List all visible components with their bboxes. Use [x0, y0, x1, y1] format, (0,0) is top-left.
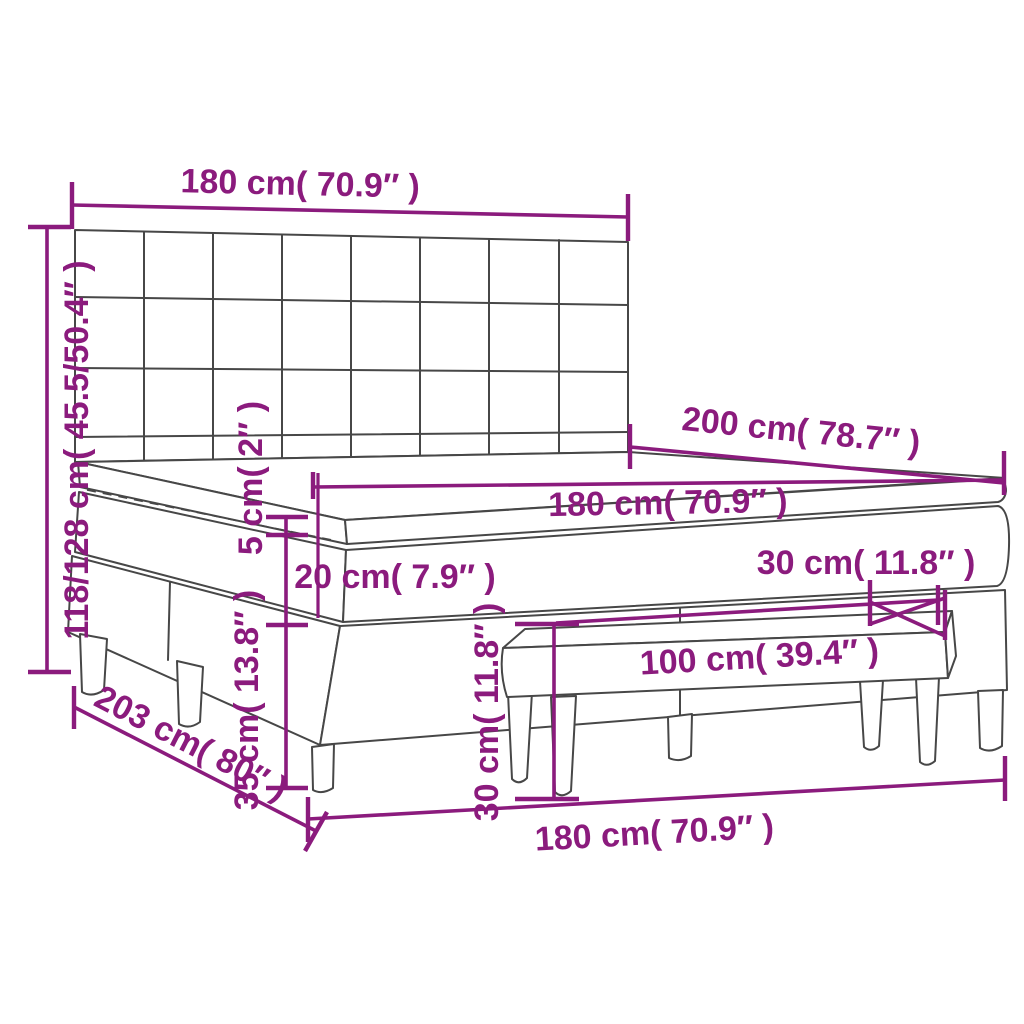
dim-floor-width: 180 cm( 70.9″ ): [308, 756, 1005, 859]
dim-headboard-width: 180 cm( 70.9″ ): [72, 162, 628, 241]
bed-dimension-diagram: 180 cm( 70.9″ ) 118/128 cm( 45.5/50.4″ )…: [0, 0, 1024, 1024]
dim-headboard-width-label: 180 cm( 70.9″ ): [180, 162, 420, 205]
dim-bed-length-label: 200 cm( 78.7″ ): [680, 400, 922, 462]
diagram-canvas: 180 cm( 70.9″ ) 118/128 cm( 45.5/50.4″ )…: [0, 0, 1024, 1024]
dim-total-height-label: 118/128 cm( 45.5/50.4″ ): [58, 260, 96, 639]
dim-bench-height-label: 30 cm( 11.8″ ): [468, 603, 506, 822]
dim-total-height: 118/128 cm( 45.5/50.4″ ): [28, 227, 96, 672]
dim-floor-width-label: 180 cm( 70.9″ ): [534, 807, 775, 858]
bed-leg: [668, 714, 692, 760]
bed-leg: [312, 744, 334, 792]
bench-leg: [916, 677, 939, 765]
headboard: [75, 230, 628, 462]
dim-bench-depth-label: 30 cm( 11.8″ ): [757, 544, 976, 582]
dim-mattress-thickness-label: 20 cm( 7.9″ ): [294, 558, 496, 596]
product-drawing: [68, 230, 1009, 795]
bench-leg: [508, 692, 532, 782]
bench-leg: [860, 680, 883, 750]
dim-topper-thickness-label: 5 cm( 2″ ): [232, 401, 270, 555]
dim-mattress-width-label: 180 cm( 70.9″ ): [548, 482, 788, 524]
bed-leg: [978, 690, 1003, 751]
